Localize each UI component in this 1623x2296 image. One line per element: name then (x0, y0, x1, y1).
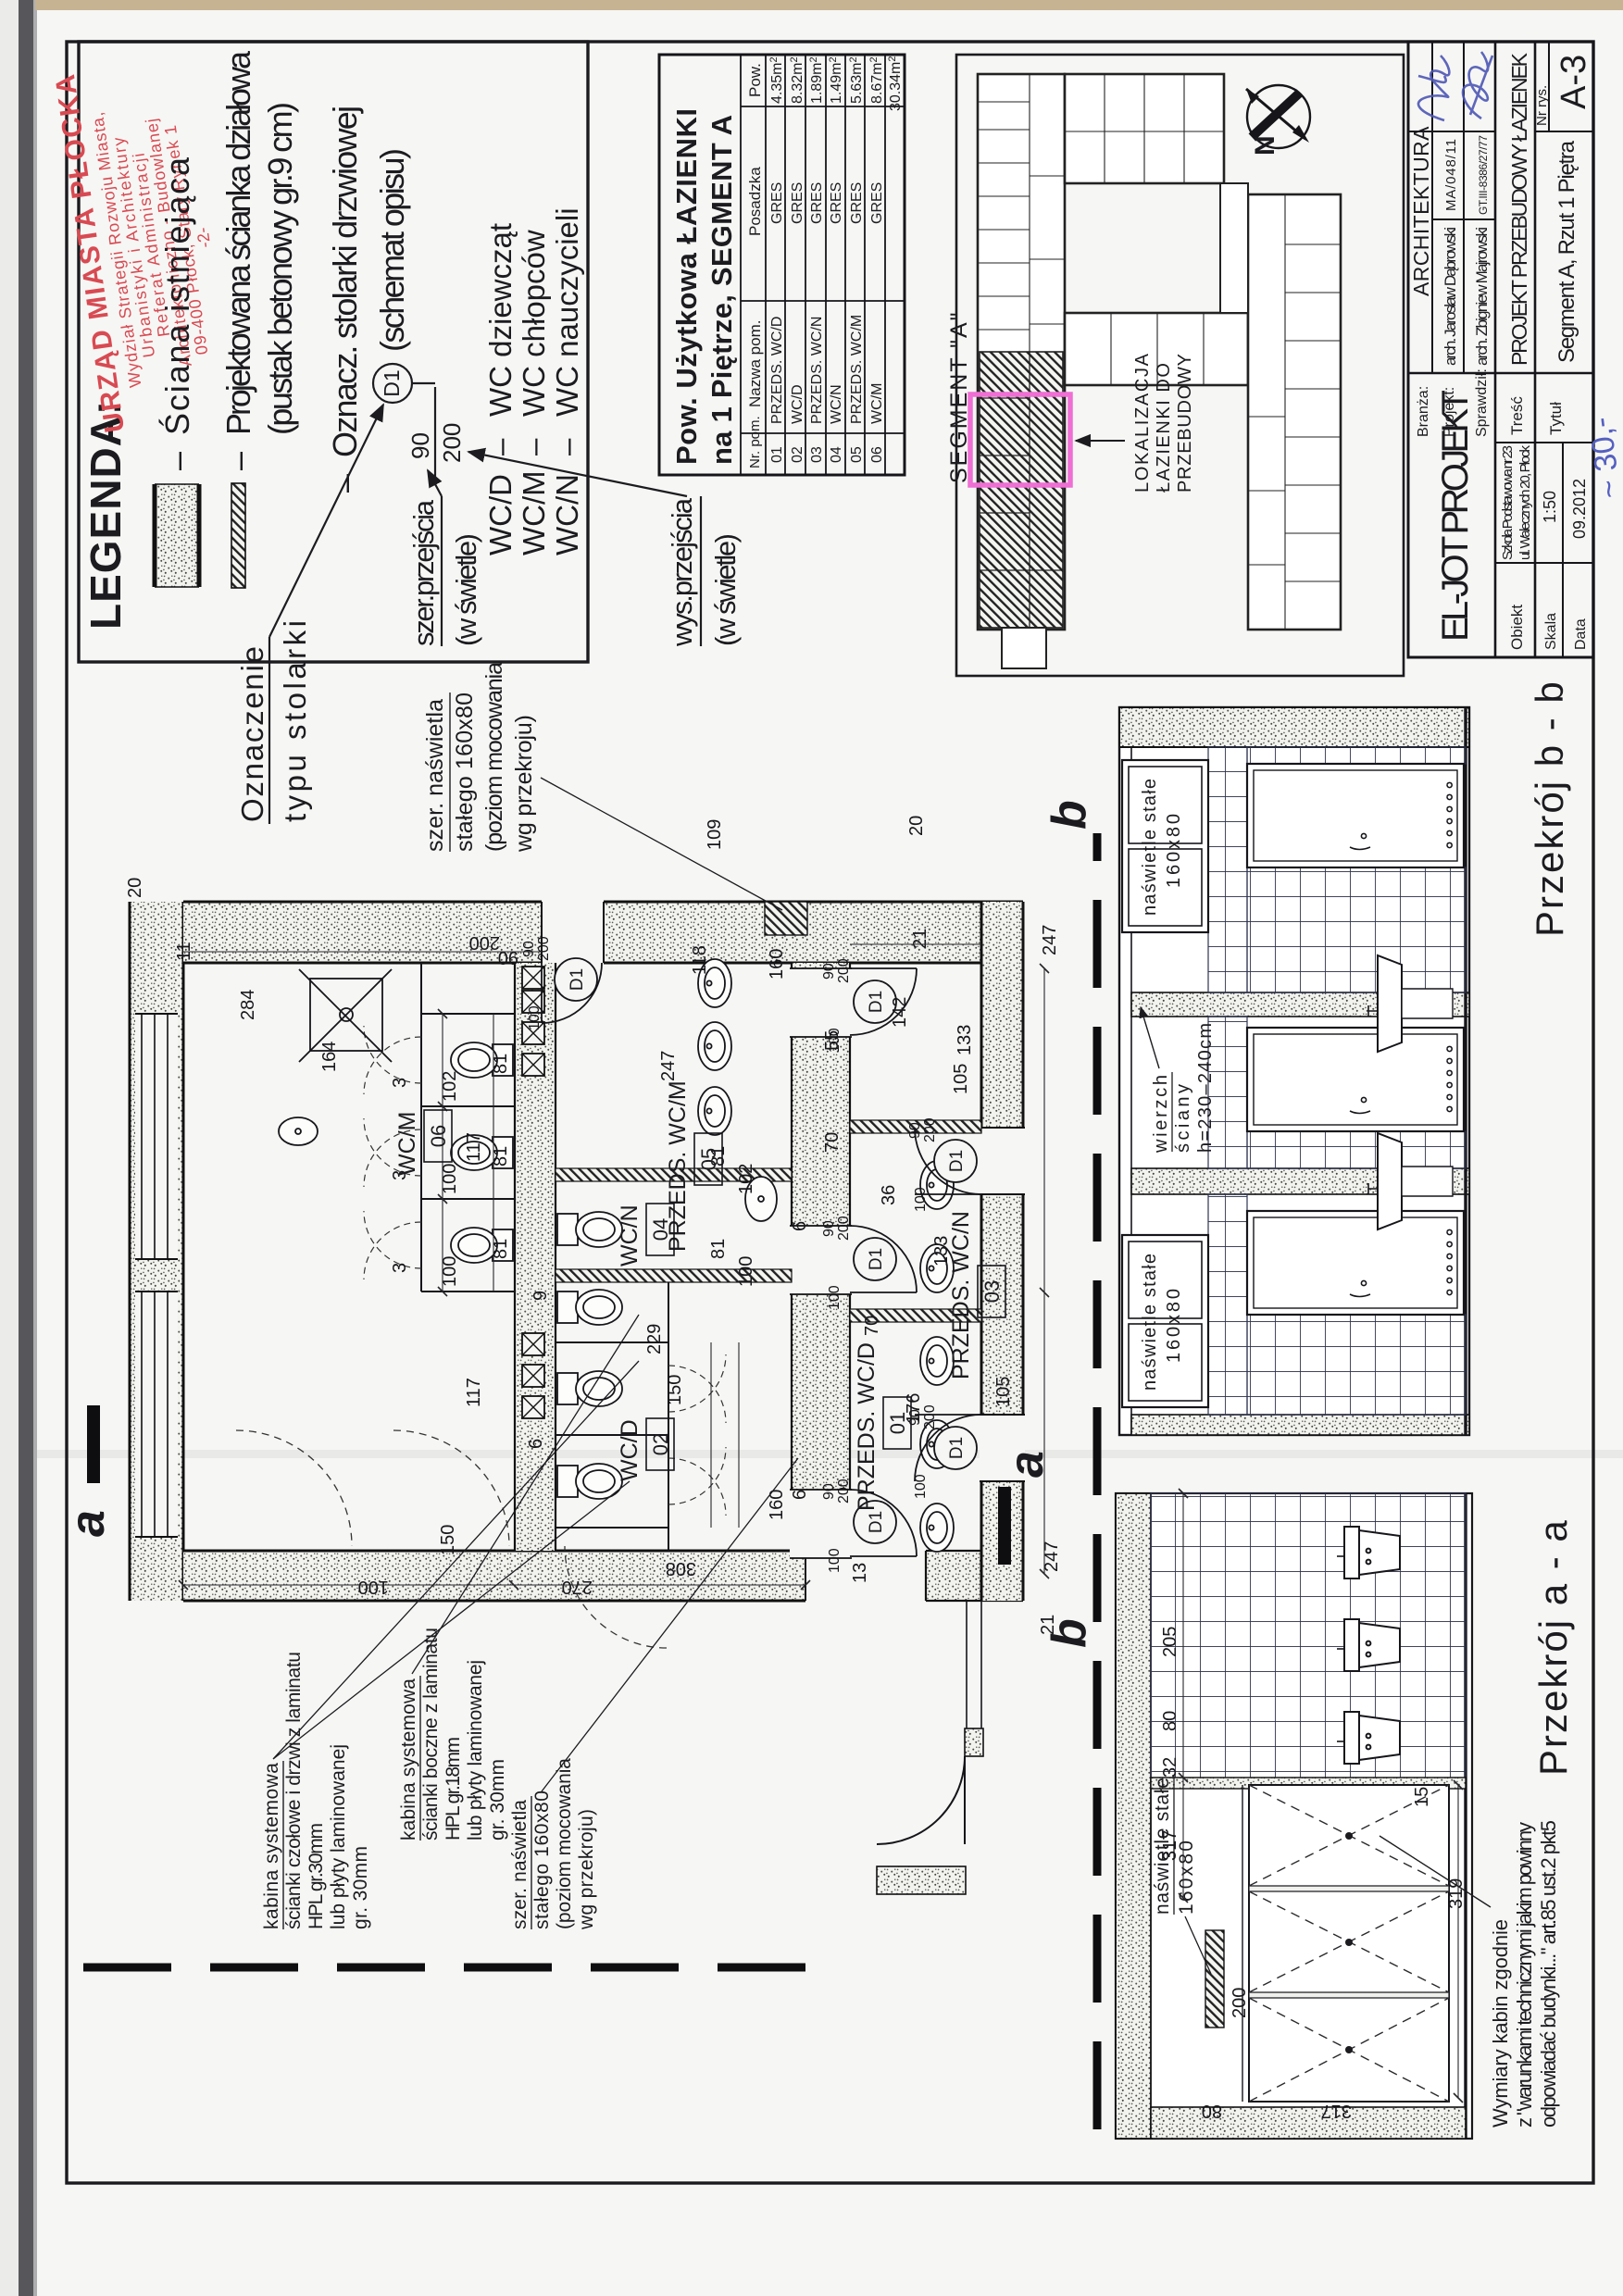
svg-text:102: 102 (736, 1164, 756, 1194)
svg-text:3: 3 (390, 1078, 410, 1088)
svg-text:142: 142 (890, 997, 910, 1028)
svg-text:8.67m2: 8.67m2 (868, 56, 885, 104)
svg-text:GRES: GRES (829, 182, 844, 224)
svg-text:D1: D1 (380, 369, 404, 396)
svg-text:PRZEBUDOWY: PRZEBUDOWY (1175, 354, 1195, 493)
svg-text:Nazwa pom.: Nazwa pom. (746, 320, 764, 407)
svg-text:36: 36 (879, 1185, 899, 1205)
svg-text:szer.przejścia: szer.przejścia (407, 499, 440, 646)
svg-text:(schemat opisu): (schemat opisu) (373, 148, 411, 352)
svg-text:05: 05 (849, 446, 865, 463)
svg-text:PROJEKT PRZEBUDOWY ŁAZIENEK: PROJEKT PRZEBUDOWY ŁAZIENEK (1507, 52, 1531, 366)
svg-text:247: 247 (1040, 925, 1060, 955)
svg-text:ścianki boczne z laminatu: ścianki boczne z laminatu (420, 1628, 442, 1841)
svg-text:kabina systemowa: kabina systemowa (398, 1678, 419, 1841)
svg-text:N: N (1250, 135, 1280, 156)
svg-text:200: 200 (922, 1117, 938, 1142)
svg-text:Sprawdził:: Sprawdził: (1474, 368, 1490, 437)
svg-text:~ 30,-: ~ 30,- (1583, 415, 1623, 500)
svg-text:Segment A, Rzut 1 Piętra: Segment A, Rzut 1 Piętra (1554, 140, 1579, 363)
svg-text:15: 15 (1412, 1787, 1432, 1807)
svg-text:80: 80 (1160, 1711, 1180, 1731)
svg-text:02: 02 (649, 1433, 672, 1455)
svg-text:317: 317 (1321, 2101, 1352, 2121)
svg-text:200: 200 (1230, 1988, 1250, 2018)
svg-text:100: 100 (358, 1577, 389, 1597)
svg-text:WC/N: WC/N (617, 1204, 643, 1267)
svg-text:308: 308 (666, 1558, 696, 1578)
svg-text:06: 06 (869, 446, 885, 463)
svg-text:PRZEDS. WC/D: PRZEDS. WC/D (854, 1342, 880, 1511)
svg-text:32: 32 (1160, 1757, 1180, 1778)
svg-text:GT.III-8386/27/77: GT.III-8386/27/77 (1477, 135, 1490, 215)
svg-text:90: 90 (821, 963, 837, 980)
svg-text:GRES: GRES (790, 182, 805, 224)
svg-text:Pow.: Pow. (746, 63, 764, 97)
svg-text:03: 03 (809, 446, 825, 463)
svg-text:Nr. pom.: Nr. pom. (747, 416, 763, 468)
svg-text:100: 100 (827, 1028, 843, 1053)
svg-text:wg przekroju): wg przekroju) (511, 715, 537, 853)
svg-text:80: 80 (1202, 2101, 1222, 2121)
svg-text:160: 160 (767, 949, 787, 980)
svg-text:06: 06 (427, 1125, 450, 1147)
svg-text:a: a (61, 1510, 115, 1537)
svg-text:90: 90 (498, 947, 518, 967)
svg-text:6: 6 (790, 1221, 810, 1231)
svg-text:Treść: Treść (1508, 396, 1526, 435)
svg-text:Obiekt: Obiekt (1508, 605, 1526, 650)
svg-text:5.63m2: 5.63m2 (848, 56, 865, 104)
svg-text:100: 100 (527, 1005, 543, 1030)
svg-text:typu stolarki: typu stolarki (278, 620, 312, 822)
svg-text:stałego 160x80: stałego 160x80 (452, 693, 478, 852)
svg-text:319: 319 (1446, 1878, 1467, 1909)
svg-text:Wymiary kabin zgodnie: Wymiary kabin zgodnie (1489, 1919, 1512, 2128)
svg-text:6: 6 (526, 1439, 546, 1449)
svg-text:200: 200 (438, 423, 466, 463)
svg-text:WC chłopców: WC chłopców (517, 230, 551, 417)
svg-text:D1: D1 (867, 1511, 886, 1533)
svg-text:lub płyty laminowanej: lub płyty laminowanej (328, 1744, 349, 1929)
svg-text:Data: Data (1573, 618, 1589, 650)
svg-text:LOKALIZACJA: LOKALIZACJA (1132, 353, 1153, 493)
svg-text:3: 3 (390, 1263, 410, 1273)
svg-text:na 1 Piętrze, SEGMENT A: na 1 Piętrze, SEGMENT A (705, 115, 738, 465)
svg-text:70: 70 (862, 1316, 882, 1336)
svg-text:100: 100 (736, 1256, 756, 1287)
svg-text:kabina systemowa: kabina systemowa (261, 1763, 282, 1929)
svg-text:1:50: 1:50 (1541, 491, 1559, 523)
svg-text:ul. Walecznych 20, Płock: ul. Walecznych 20, Płock (1517, 445, 1533, 561)
svg-text:lub płyty laminowanej: lub płyty laminowanej (465, 1660, 486, 1841)
svg-text:13: 13 (850, 1563, 870, 1583)
svg-text:D1: D1 (947, 1437, 967, 1459)
svg-text:205: 205 (1160, 1627, 1180, 1657)
svg-text:Oznacz. stolarki drzwiowej: Oznacz. stolarki drzwiowej (326, 106, 364, 457)
svg-text:MA/048/11: MA/048/11 (1443, 139, 1459, 211)
svg-text:30.34m2: 30.34m2 (887, 56, 904, 112)
svg-text:117: 117 (464, 1132, 484, 1162)
svg-text:Posadzka: Posadzka (746, 167, 764, 236)
svg-text:Pow. Użytkowa ŁAZIENKI: Pow. Użytkowa ŁAZIENKI (670, 108, 703, 465)
svg-text:WC/N: WC/N (550, 474, 584, 555)
svg-text:WC/M: WC/M (517, 470, 551, 555)
svg-text:D1: D1 (867, 1248, 886, 1270)
svg-text:100: 100 (827, 1285, 843, 1310)
svg-text:Przekrój a - a: Przekrój a - a (1531, 1518, 1575, 1776)
svg-text:WC/M: WC/M (394, 1112, 420, 1176)
svg-text:284: 284 (238, 990, 258, 1020)
svg-text:150: 150 (665, 1375, 685, 1405)
svg-text:Przekrój b - b: Przekrój b - b (1528, 680, 1571, 937)
svg-text:odpowiadać budynki..." art.85: odpowiadać budynki..." art.85 ust.2 pkt5 (1537, 1820, 1560, 2128)
svg-text:150: 150 (438, 1525, 458, 1555)
svg-text:WC/N: WC/N (829, 384, 844, 424)
svg-text:1.49m2: 1.49m2 (828, 56, 844, 104)
svg-text:81: 81 (708, 1239, 729, 1259)
svg-text:164: 164 (319, 1042, 340, 1072)
svg-text:(w świetle): (w świetle) (709, 533, 742, 646)
svg-text:–: – (219, 452, 257, 470)
svg-text:PRZEDS. WC/N: PRZEDS. WC/N (948, 1211, 974, 1379)
svg-text:HPL gr.18mm: HPL gr.18mm (443, 1737, 464, 1841)
svg-text:wys.przejścia: wys.przejścia (666, 497, 698, 647)
svg-text:WC/M: WC/M (869, 383, 885, 424)
svg-text:21: 21 (910, 929, 930, 949)
svg-text:200: 200 (836, 958, 852, 983)
svg-text:GRES: GRES (769, 182, 785, 224)
svg-text:Branża:: Branża: (1416, 386, 1431, 437)
svg-text:247: 247 (658, 1051, 679, 1081)
svg-text:01: 01 (769, 446, 785, 463)
svg-text:gr. 30mm: gr. 30mm (487, 1759, 508, 1841)
svg-text:Skala: Skala (1543, 613, 1559, 650)
svg-text:04: 04 (649, 1218, 672, 1241)
svg-text:90: 90 (821, 1483, 837, 1500)
svg-text:6: 6 (790, 1490, 810, 1500)
svg-text:Tytuł: Tytuł (1547, 402, 1565, 435)
svg-text:Szkoła Podstawowa nr 23: Szkoła Podstawowa nr 23 (1500, 445, 1516, 560)
svg-text:stałego 160x80: stałego 160x80 (531, 1791, 553, 1929)
svg-text:gr. 30mm: gr. 30mm (350, 1846, 371, 1929)
svg-text:szer. naświetla: szer. naświetla (422, 699, 448, 852)
svg-text:D1: D1 (867, 991, 886, 1013)
svg-text:90: 90 (821, 1220, 837, 1237)
svg-text:–: – (550, 438, 584, 455)
svg-text:(w świetle): (w świetle) (450, 533, 482, 646)
svg-text:90: 90 (907, 1122, 923, 1139)
svg-text:200: 200 (536, 936, 552, 961)
svg-text:02: 02 (790, 446, 805, 463)
svg-text:h=230–240cm: h=230–240cm (1195, 1023, 1216, 1153)
svg-text:70: 70 (822, 1132, 843, 1153)
svg-text:(poziom mocowania: (poziom mocowania (554, 1758, 575, 1929)
svg-text:100: 100 (827, 1548, 843, 1573)
svg-text:4.35m2: 4.35m2 (768, 56, 785, 104)
svg-text:20: 20 (125, 878, 145, 898)
svg-text:09.2012: 09.2012 (1570, 479, 1589, 539)
svg-text:D1: D1 (568, 968, 587, 991)
svg-text:b: b (1042, 800, 1096, 830)
svg-text:9: 9 (531, 1291, 551, 1301)
svg-text:ścianki czołowe i drzwi z lami: ścianki czołowe i drzwi z laminatu (283, 1652, 305, 1929)
svg-text:D1: D1 (947, 1150, 967, 1172)
svg-text:270: 270 (562, 1577, 593, 1597)
svg-text:Projekt:: Projekt: (1442, 387, 1457, 437)
svg-text:PRZEDS. WC/D: PRZEDS. WC/D (769, 317, 785, 424)
svg-text:04: 04 (829, 446, 844, 463)
svg-text:ARCHITEKTURA: ARCHITEKTURA (1409, 125, 1433, 296)
svg-text:WC/D: WC/D (483, 474, 518, 555)
svg-text:GRES: GRES (849, 182, 865, 224)
svg-text:(pustak betonowy gr.9 cm): (pustak betonowy gr.9 cm) (261, 102, 299, 435)
svg-text:200: 200 (836, 1479, 852, 1504)
svg-text:–: – (158, 452, 196, 470)
svg-text:05: 05 (697, 1148, 720, 1170)
svg-text:WC dziewcząt: WC dziewcząt (483, 223, 518, 417)
svg-text:20: 20 (906, 816, 927, 836)
svg-text:90: 90 (406, 432, 434, 459)
svg-text:wg przekroju): wg przekroju) (576, 1809, 597, 1930)
svg-text:WC nauczycieli: WC nauczycieli (550, 207, 584, 417)
svg-text:SEGMENT "A": SEGMENT "A" (946, 310, 972, 483)
svg-text:100: 100 (913, 1474, 929, 1499)
svg-text:PRZEDS. WC/N: PRZEDS. WC/N (809, 317, 825, 424)
svg-text:–: – (483, 438, 518, 455)
svg-text:90: 90 (521, 941, 537, 957)
svg-text:PRZEDS. WC/M: PRZEDS. WC/M (849, 315, 865, 424)
svg-text:03: 03 (980, 1280, 1004, 1303)
svg-text:WC/D: WC/D (617, 1419, 643, 1481)
svg-text:200: 200 (836, 1216, 852, 1241)
svg-text:WC/D: WC/D (790, 384, 805, 424)
svg-text:90: 90 (907, 1409, 923, 1426)
svg-text:HPL gr.30mm: HPL gr.30mm (306, 1823, 327, 1929)
svg-text:105: 105 (993, 1377, 1014, 1407)
svg-text:b: b (1042, 1618, 1096, 1648)
svg-text:229: 229 (644, 1324, 665, 1354)
svg-text:Oznaczenie: Oznaczenie (235, 646, 269, 822)
svg-text:133: 133 (955, 1025, 975, 1055)
svg-text:100: 100 (913, 1187, 929, 1212)
svg-text:GRES: GRES (869, 182, 885, 224)
svg-text:Projektowana ścianka działowa: Projektowana ścianka działowa (219, 50, 257, 435)
svg-text:z "warunkami technicznymi jaki: z "warunkami technicznymi jakim powinny (1513, 1822, 1536, 2128)
svg-text:(poziom mocowania: (poziom mocowania (481, 662, 507, 852)
svg-text:200: 200 (922, 1404, 938, 1429)
svg-text:01: 01 (886, 1412, 909, 1434)
svg-text:A-3: A-3 (1554, 55, 1593, 109)
svg-text:160: 160 (767, 1490, 787, 1520)
svg-text:a: a (1000, 1451, 1054, 1478)
svg-text:Ściana istniejąca: Ściana istniejąca (157, 156, 196, 435)
svg-text:ŁAZIENKI DO: ŁAZIENKI DO (1154, 363, 1174, 493)
svg-text:GRES: GRES (809, 182, 825, 224)
svg-text:8.32m2: 8.32m2 (789, 56, 805, 104)
svg-text:naświetle stałe: naświetle stałe (1140, 779, 1160, 916)
svg-text:–: – (517, 438, 551, 455)
svg-text:317: 317 (1160, 1830, 1180, 1861)
svg-text:109: 109 (705, 819, 725, 850)
svg-text:szer. naświetla: szer. naświetla (509, 1800, 531, 1929)
svg-text:118: 118 (690, 945, 710, 975)
svg-text:naświetle stałe: naświetle stałe (1140, 1254, 1160, 1391)
svg-text:200: 200 (469, 932, 500, 953)
svg-text:117: 117 (464, 1378, 484, 1407)
svg-text:arch. Jarosław Dąbrowski: arch. Jarosław Dąbrowski (1442, 227, 1459, 366)
svg-text:Nr rys.: Nr rys. (1534, 85, 1550, 126)
svg-text:1.89m2: 1.89m2 (808, 56, 825, 104)
svg-text:arch. Zbigniew Majrowski: arch. Zbigniew Majrowski (1473, 227, 1491, 366)
svg-text:105: 105 (951, 1064, 971, 1094)
